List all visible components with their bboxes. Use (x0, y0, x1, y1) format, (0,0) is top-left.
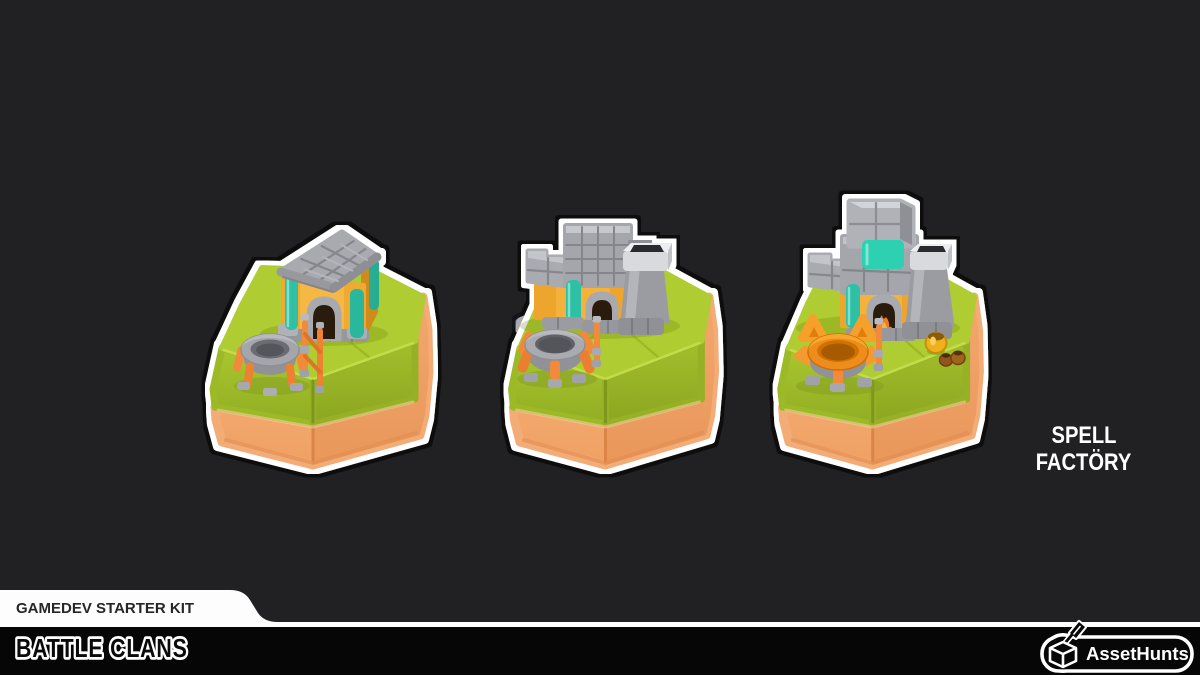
svg-text:BATTLE CLANS: BATTLE CLANS (16, 634, 188, 664)
svg-text:SPELL: SPELL (1052, 421, 1117, 448)
svg-text:AssetHunts: AssetHunts (1086, 643, 1189, 664)
svg-text:FACTÖRY: FACTÖRY (1036, 448, 1132, 475)
